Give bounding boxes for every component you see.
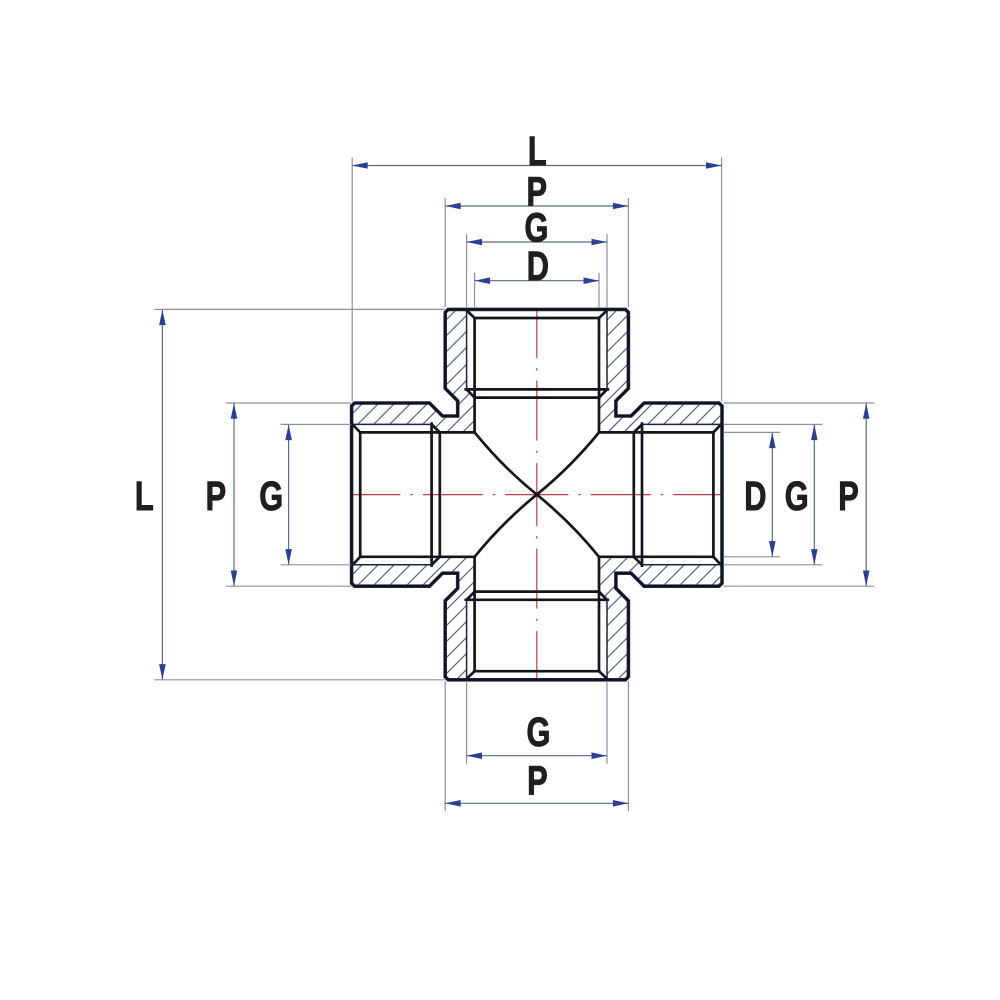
- svg-text:G: G: [527, 709, 551, 755]
- svg-text:P: P: [838, 473, 859, 519]
- svg-text:L: L: [528, 128, 547, 174]
- svg-text:D: D: [744, 473, 766, 519]
- svg-text:L: L: [135, 473, 154, 519]
- svg-text:G: G: [785, 473, 809, 519]
- svg-text:P: P: [527, 757, 548, 803]
- svg-text:P: P: [206, 473, 227, 519]
- svg-text:D: D: [527, 243, 549, 289]
- svg-text:G: G: [259, 473, 283, 519]
